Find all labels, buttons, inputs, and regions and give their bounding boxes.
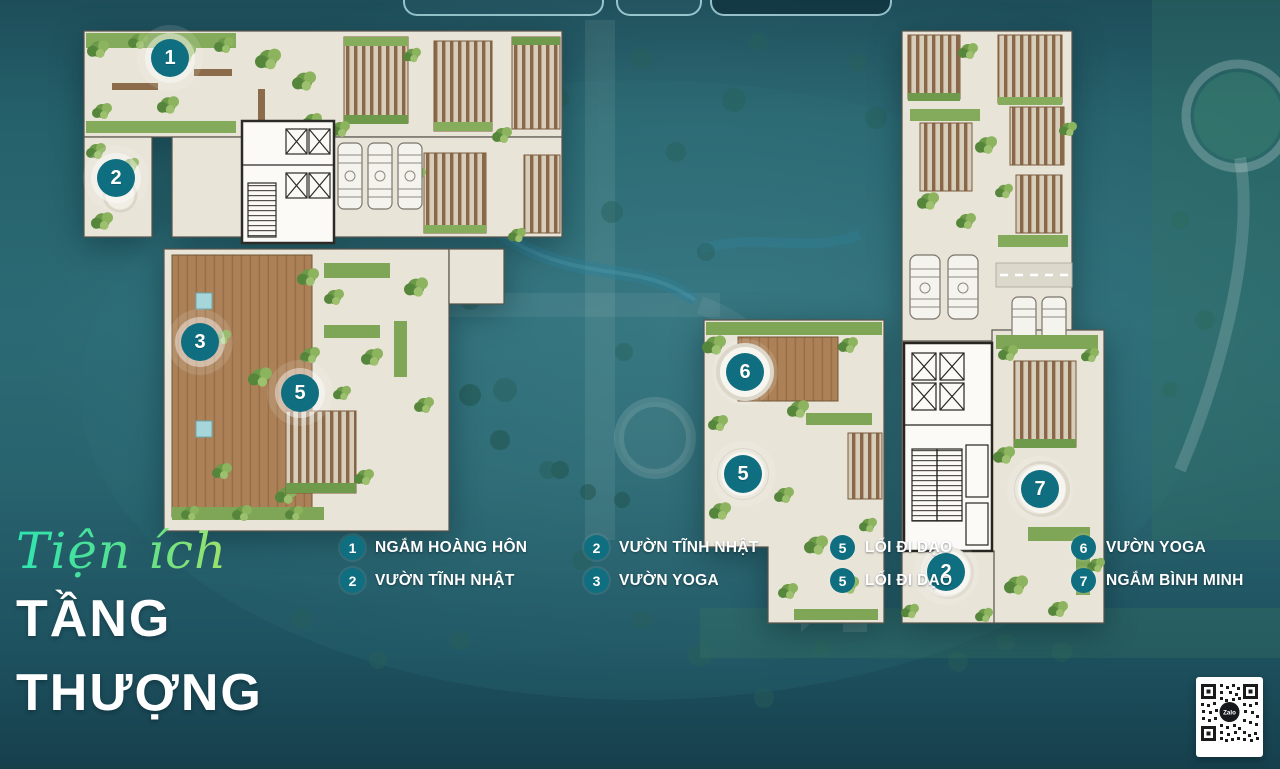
legend-item: 5 LỐI ĐI DẠO: [830, 535, 952, 560]
marker-5b: 5: [724, 455, 762, 493]
nav-tab-2[interactable]: [616, 0, 702, 16]
legend-item: 2 VƯỜN TĨNH NHẬT: [340, 568, 527, 593]
legend-item: 7 NGẮM BÌNH MINH: [1071, 568, 1244, 593]
marker-3: 3: [181, 323, 219, 361]
legend-item-label: NGẮM BÌNH MINH: [1106, 572, 1244, 590]
page-title: Tiện ích TẦNG THƯỢNG: [16, 524, 263, 719]
legend-item-label: VƯỜN TĨNH NHẬT: [619, 539, 759, 557]
legend-item-number-badge: 6: [1071, 535, 1096, 560]
legend-item-number-badge: 3: [584, 568, 609, 593]
legend-item: 5 LỐI ĐI DẠO: [830, 568, 952, 593]
legend-item-label: LỐI ĐI DẠO: [865, 539, 952, 557]
marker-7: 7: [1021, 470, 1059, 508]
legend-item: 3 VƯỜN YOGA: [584, 568, 759, 593]
marker-6: 6: [726, 353, 764, 391]
legend-item-label: VƯỜN TĨNH NHẬT: [375, 572, 515, 590]
legend-item: 6 VƯỜN YOGA: [1071, 535, 1244, 560]
legend-item-label: VƯỜN YOGA: [619, 572, 719, 590]
floorplan-tower-a: [72, 25, 572, 535]
legend-group-2: 2 VƯỜN TĨNH NHẬT 3 VƯỜN YOGA: [584, 535, 759, 593]
marker-5: 5: [281, 374, 319, 412]
legend-group-1: 1 NGẮM HOÀNG HÔN 2 VƯỜN TĨNH NHẬT: [340, 535, 527, 593]
qr-zalo-label: Zalo: [1223, 709, 1236, 716]
legend-item: 2 VƯỜN TĨNH NHẬT: [584, 535, 759, 560]
title-script-line: Tiện ích: [16, 524, 263, 579]
legend-group-4: 6 VƯỜN YOGA 7 NGẮM BÌNH MINH: [1071, 535, 1244, 593]
legend-item-number-badge: 2: [340, 568, 365, 593]
legend-item-label: VƯỜN YOGA: [1106, 539, 1206, 557]
legend-item-number-badge: 5: [830, 568, 855, 593]
legend-item: 1 NGẮM HOÀNG HÔN: [340, 535, 527, 560]
legend-item-label: LỐI ĐI DẠO: [865, 572, 952, 590]
legend-item-number-badge: 5: [830, 535, 855, 560]
marker-2: 2: [97, 159, 135, 197]
nav-tab-1[interactable]: [403, 0, 604, 16]
legend-item-number-badge: 2: [584, 535, 609, 560]
legend-item-number-badge: 1: [340, 535, 365, 560]
marker-1: 1: [151, 39, 189, 77]
legend-item-number-badge: 7: [1071, 568, 1096, 593]
zalo-qr-code: Zalo: [1196, 677, 1263, 757]
title-line-2: THƯỢNG: [16, 667, 263, 719]
legend-group-3: 5 LỐI ĐI DẠO 5 LỐI ĐI DẠO: [830, 535, 952, 593]
legend-item-label: NGẮM HOÀNG HÔN: [375, 539, 527, 557]
title-line-1: TẦNG: [16, 593, 263, 645]
nav-tab-3[interactable]: [710, 0, 892, 16]
rooftop-amenities-page: 1 2 3 5 6 5 7 2 1 NGẮM HOÀNG HÔN 2 VƯỜN …: [0, 0, 1280, 769]
